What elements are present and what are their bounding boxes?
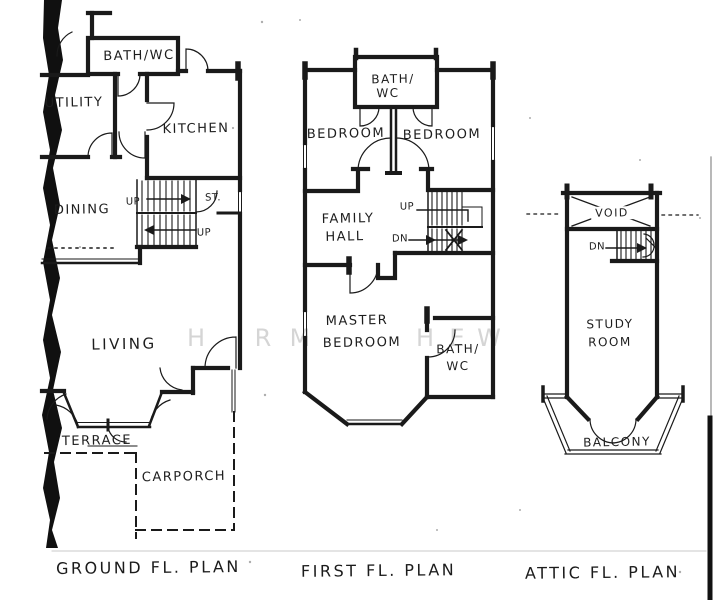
room-label-void: VOID bbox=[591, 206, 633, 220]
scanned-floor-plan-page: H R M H E W bbox=[0, 0, 719, 600]
store-label: ST. bbox=[205, 192, 221, 203]
caption-attic-floor-plan: ATTIC FL. PLAN bbox=[525, 562, 680, 583]
caption-ground-floor-plan: GROUND FL. PLAN bbox=[56, 557, 241, 578]
caption-first-floor-plan: FIRST FL. PLAN bbox=[301, 560, 456, 581]
stair-label-up-lower: UP bbox=[197, 227, 212, 238]
stair-label-up: UP bbox=[400, 201, 415, 212]
room-label-study-line1: STUDY bbox=[586, 317, 633, 332]
room-label-master-line2: BEDROOM bbox=[323, 335, 402, 351]
room-label-bath-bottom-line2: WC bbox=[446, 359, 469, 373]
room-label-utility: UTILITY bbox=[44, 95, 103, 111]
stair-label-dn-attic: DN bbox=[589, 241, 605, 252]
room-label-study-line2: ROOM bbox=[588, 335, 632, 350]
room-label-kitchen: KITCHEN bbox=[162, 121, 229, 137]
room-label-balcony: BALCONY bbox=[583, 434, 651, 449]
room-label-living: LIVING bbox=[91, 334, 157, 353]
room-label-bedroom-right: BEDROOM bbox=[403, 127, 482, 143]
room-label-bedroom-left: BEDROOM bbox=[307, 126, 386, 142]
room-label-master-line1: MASTER bbox=[326, 313, 389, 329]
room-label-bath-top-line1: BATH/ bbox=[371, 72, 415, 87]
room-label-bath-bottom-line1: BATH/ bbox=[436, 342, 480, 357]
labels-layer: BATH/WC UTILITY KITCHEN DINING UP ST. UP… bbox=[0, 0, 719, 600]
room-label-family-hall-line2: HALL bbox=[325, 229, 364, 245]
stair-label-dn: DN bbox=[392, 233, 408, 244]
room-label-dining: DINING bbox=[54, 202, 110, 218]
room-label-carporch: CARPORCH bbox=[142, 469, 227, 485]
room-label-bath-top-line2: WC bbox=[376, 86, 399, 100]
room-label-family-hall-line1: FAMILY bbox=[322, 211, 375, 227]
stair-label-up-upper: UP bbox=[126, 196, 141, 207]
room-label-terrace: TERRACE bbox=[62, 433, 132, 449]
room-label-bath-wc-ground: BATH/WC bbox=[103, 48, 175, 64]
